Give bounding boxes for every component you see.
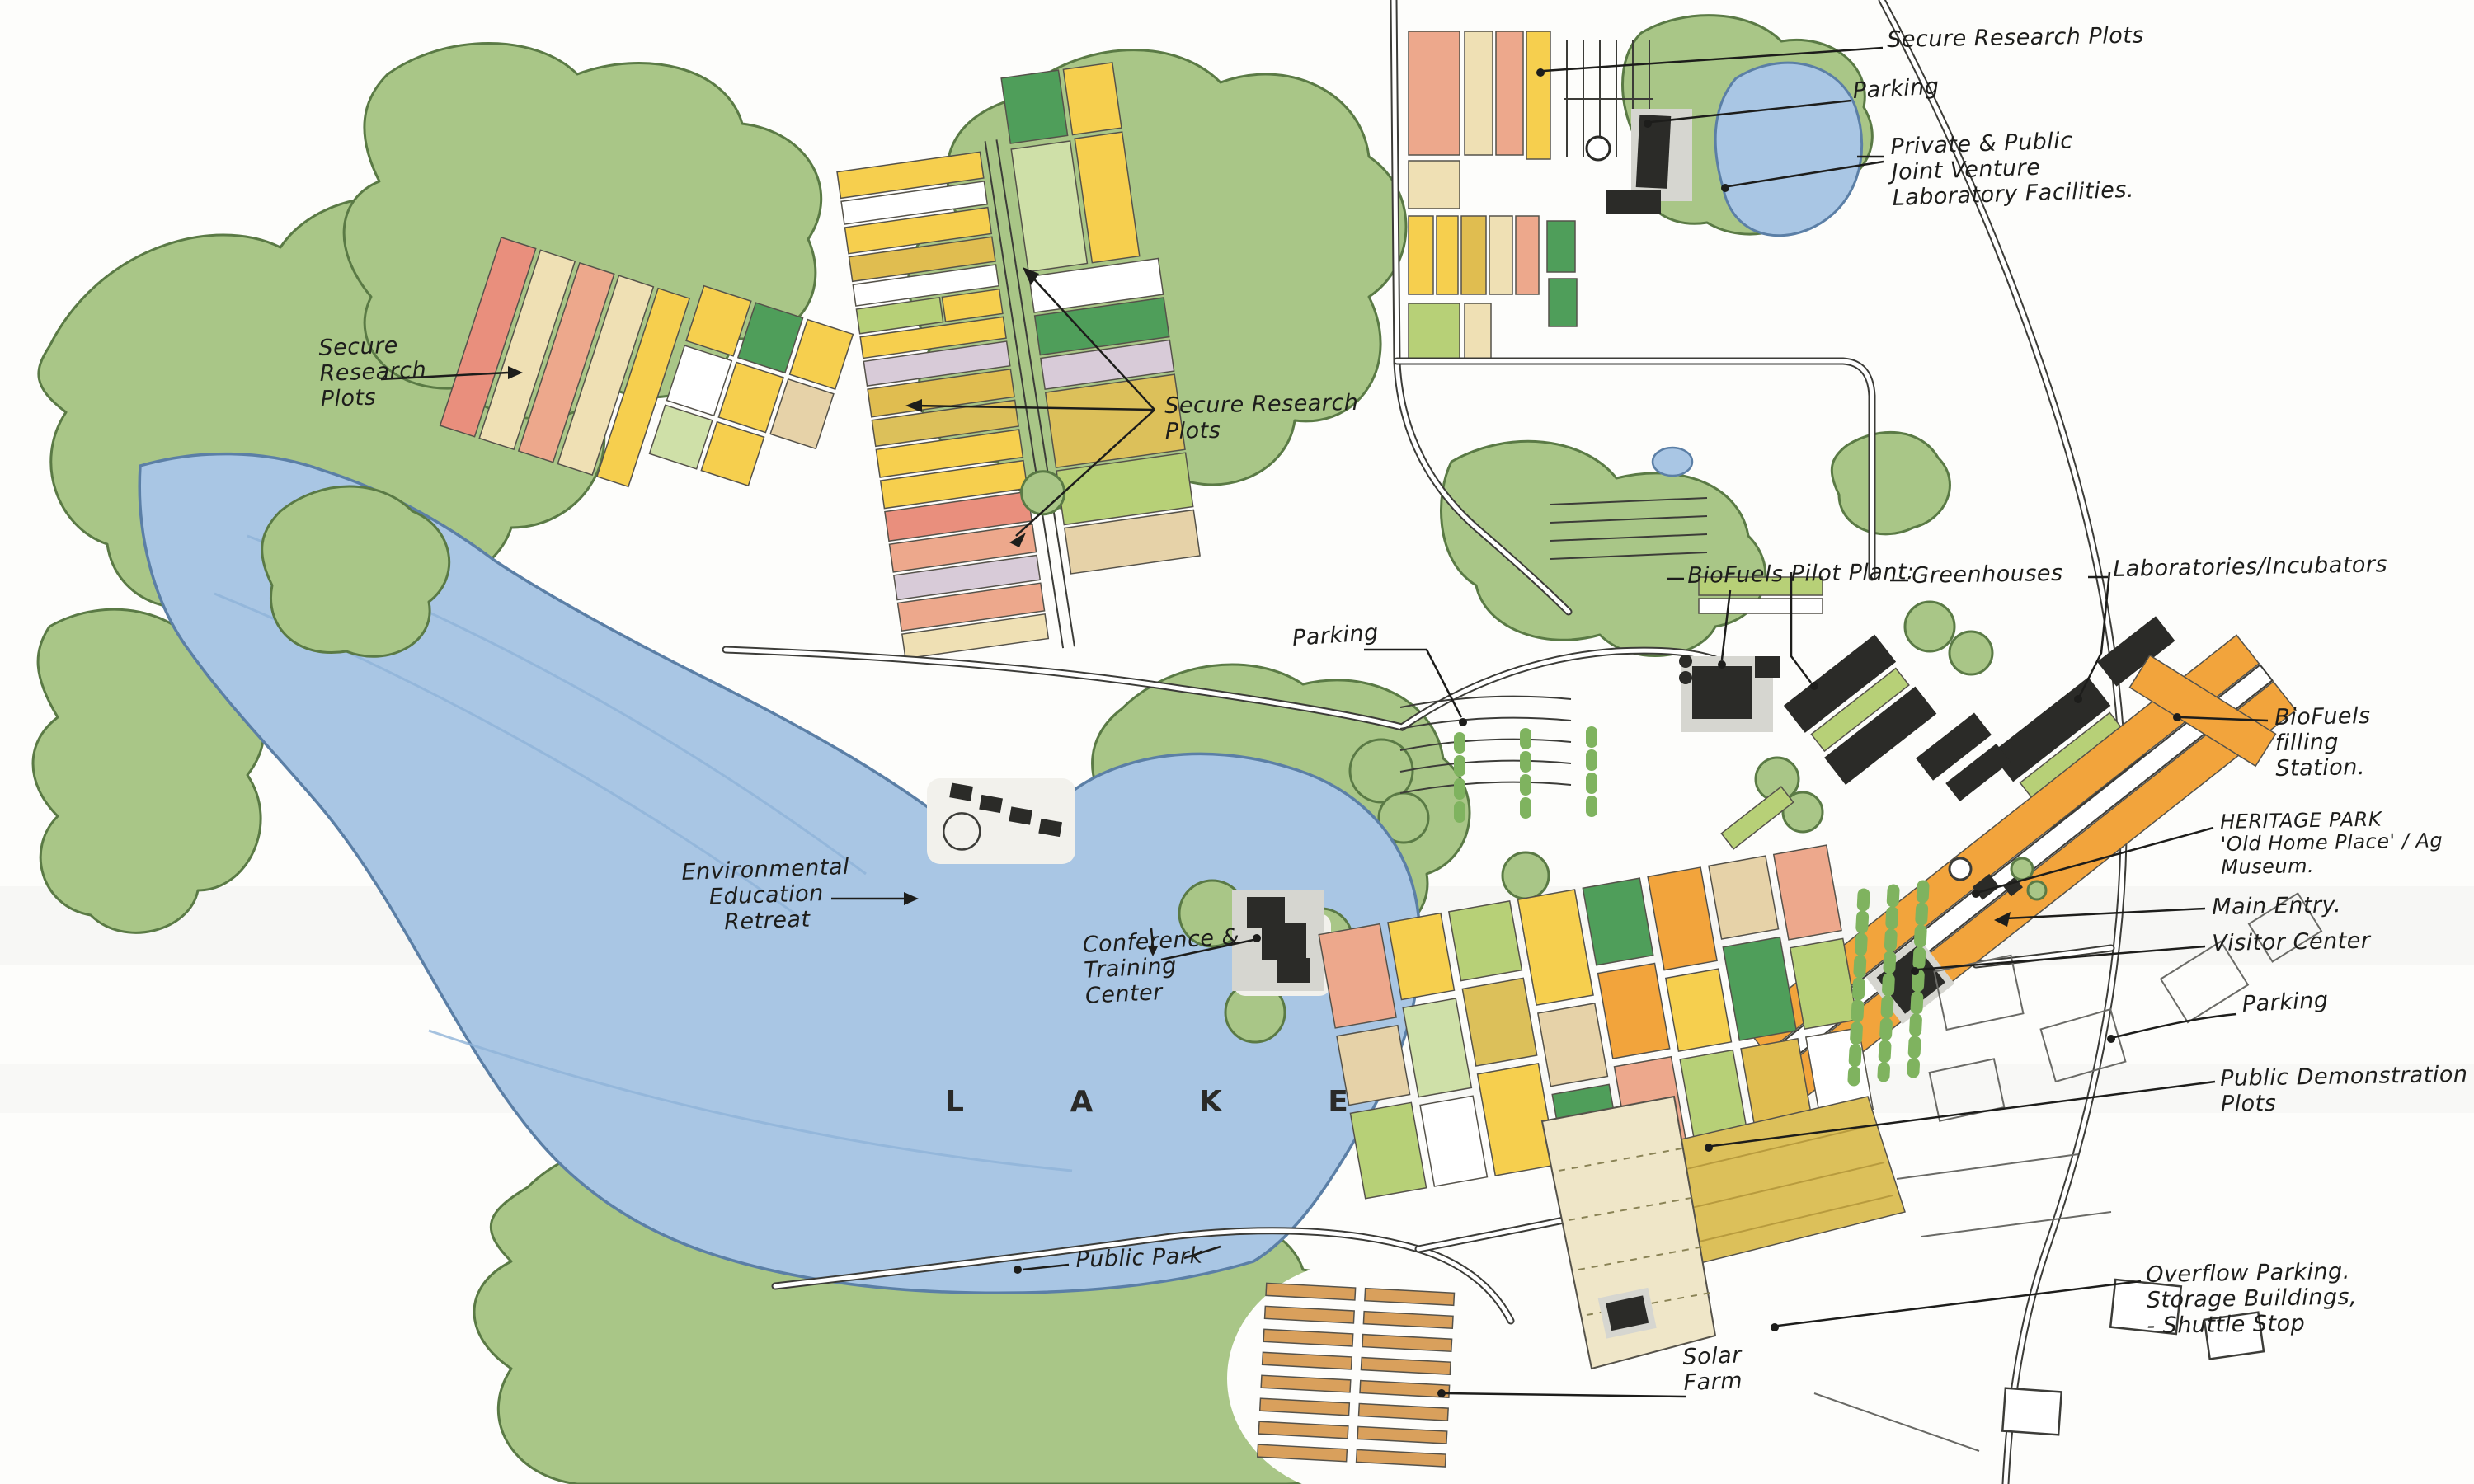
label-secure-research-plots-center: Secure Research Plots [1164, 391, 1359, 445]
label-parking-center: Parking [1291, 621, 1380, 652]
label-greenhouses: Greenhouses [1912, 561, 2063, 589]
site-plan-sketch: Secure Research Plots Secure Research Pl… [0, 0, 2474, 1484]
label-main-entry: Main Entry. [2212, 893, 2341, 920]
label-biofuels-filling-station: BioFuels filling Station. [2274, 704, 2372, 782]
label-public-demonstration-plots: Public Demonstration Plots [2220, 1063, 2468, 1118]
label-secure-research-plots-top: Secure Research Plots [1887, 24, 2144, 54]
label-environmental-education-retreat: Environmental Education Retreat [681, 855, 852, 937]
label-solar-farm: Solar Farm [1682, 1344, 1743, 1397]
label-visitor-center: Visitor Center [2212, 929, 2371, 957]
label-secure-research-plots-left: Secure Research Plots [318, 332, 428, 412]
label-parking-top: Parking [1852, 75, 1940, 105]
label-heritage-park: HERITAGE PARK 'Old Home Place' / Ag Muse… [2220, 807, 2474, 879]
label-conference-training-center: Conference & Training Center [1082, 925, 1243, 1009]
label-biofuels-pilot-plant: BioFuels Pilot Plant: [1687, 560, 1915, 589]
label-lake: L A K E [945, 1085, 1396, 1119]
label-overflow-parking: Overflow Parking. Storage Buildings, - S… [2146, 1260, 2358, 1340]
label-laboratories-incubators: Laboratories/Incubators [2113, 552, 2387, 583]
annotation-labels: Secure Research Plots Secure Research Pl… [0, 0, 2474, 1484]
label-public-park: Public Park [1075, 1244, 1203, 1274]
label-private-public-jv: Private & Public Joint Venture Laborator… [1890, 127, 2134, 211]
label-parking-right: Parking [2241, 989, 2329, 1018]
